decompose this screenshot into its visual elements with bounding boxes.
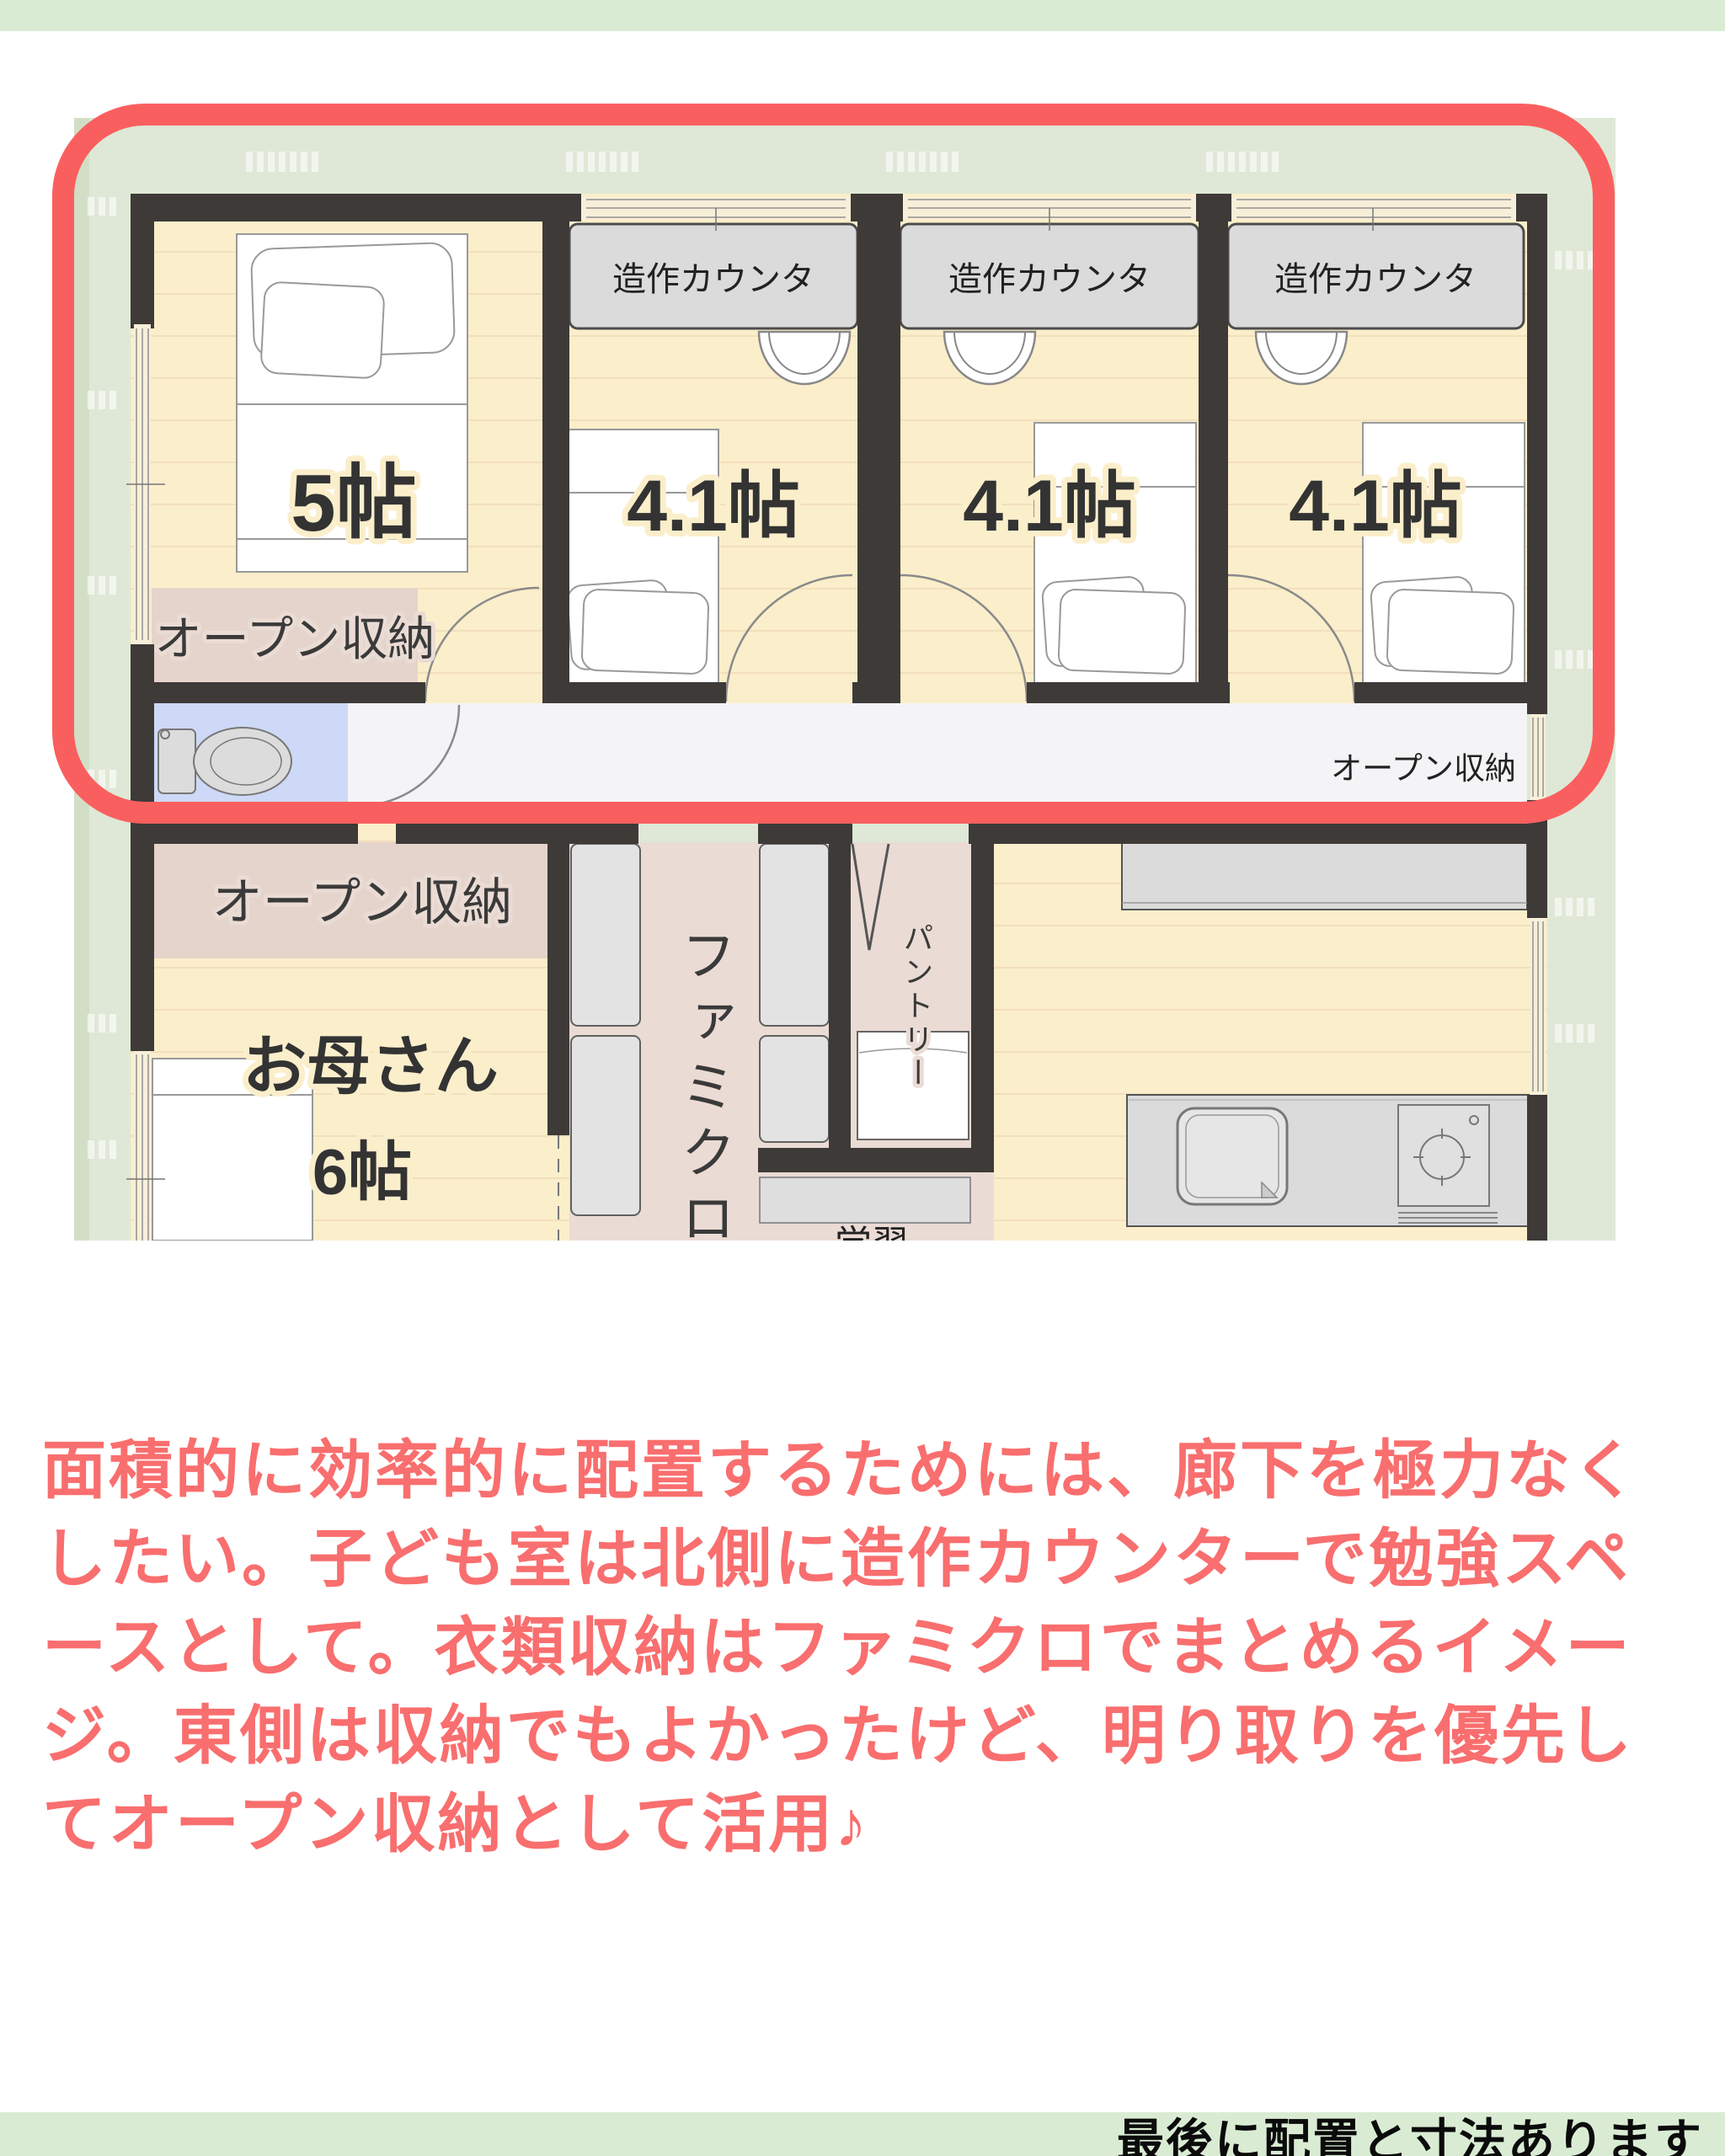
label-study: 学習 [835, 1224, 909, 1241]
label-open-storage-mother: オープン収納 [212, 874, 512, 931]
kitchen-wall-cabinet [1122, 842, 1527, 910]
caption-line: 面積的に効率的に配置するためには、廊下を極力なく [42, 1427, 1701, 1515]
stove-icon [1398, 1105, 1489, 1206]
floorplan-post: 5帖 4.1帖 4.1帖 4.1帖 造作カウンタ 造作カウンタ 造作カウンタ オ… [0, 0, 1725, 2156]
top-green-bar [0, 0, 1725, 31]
closet-left-bottom [571, 1036, 640, 1215]
bottom-note: 最後に配置と寸法あります [1117, 2104, 1703, 2156]
bottom-green-bar: 最後に配置と寸法あります [0, 2112, 1725, 2156]
label-famiclo: ファミクロ [673, 926, 735, 1241]
caption-line: したい。子ども室は北側に造作カウンターで勉強スペ [42, 1515, 1701, 1604]
closet-right-bottom [760, 1036, 829, 1142]
caption-text: 面積的に効率的に配置するためには、廊下を極力なく したい。子ども室は北側に造作カ… [42, 1427, 1701, 1869]
label-mother-name: お母さん [243, 1031, 499, 1102]
closet-left-top [571, 844, 640, 1026]
caption-line: ースとして。衣類収納はファミクロでまとめるイメー [42, 1604, 1701, 1692]
label-mother-size: 6帖 [312, 1137, 412, 1209]
caption-line: ジ。東側は収納でもよかったけど、明り取りを優先し [42, 1692, 1701, 1780]
sink-icon [1178, 1108, 1287, 1204]
closet-right-top [760, 844, 829, 1026]
caption-line: てオープン収納として活用♪ [42, 1780, 1701, 1869]
study-counter [760, 1177, 970, 1223]
label-pantry: パントリー [900, 922, 934, 1091]
window-right-kitchen [1530, 918, 1546, 1095]
red-highlight-frame [52, 104, 1615, 824]
